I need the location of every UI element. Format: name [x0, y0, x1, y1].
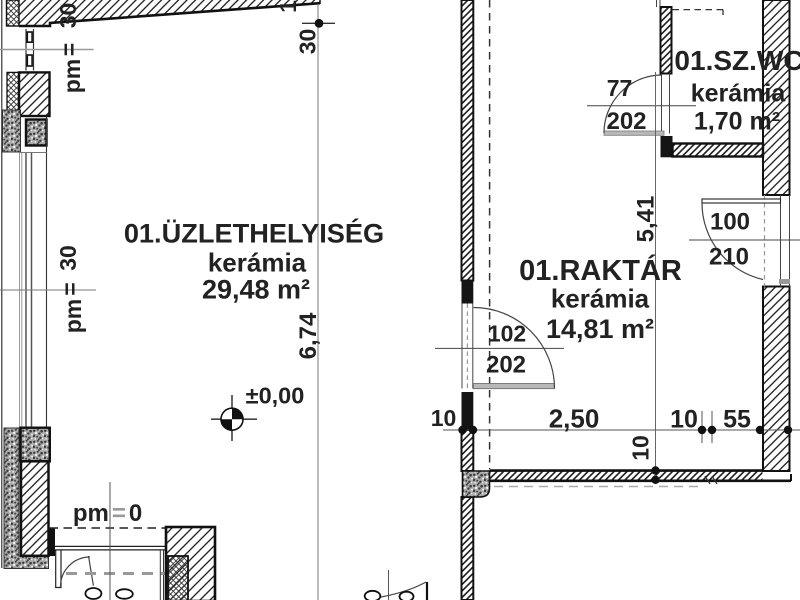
svg-text:1,70 m²: 1,70 m²: [694, 108, 780, 136]
svg-text:=: =: [57, 282, 83, 295]
svg-text:pm=0: pm=0: [73, 500, 142, 527]
svg-text:±0,00: ±0,00: [246, 383, 305, 409]
svg-text:29,48 m²: 29,48 m²: [202, 275, 310, 305]
svg-text:202: 202: [606, 108, 646, 135]
svg-text:01.ÜZLETHELYISÉG: 01.ÜZLETHELYISÉG: [124, 218, 384, 249]
svg-text:5,41: 5,41: [633, 196, 660, 243]
svg-text:pm: pm: [60, 299, 86, 334]
svg-text:102: 102: [488, 321, 526, 347]
svg-text:kerámia: kerámia: [551, 284, 650, 314]
svg-text:6,74: 6,74: [295, 312, 322, 359]
svg-text:14,81 m²: 14,81 m²: [546, 314, 654, 344]
svg-text:kerámia: kerámia: [691, 80, 787, 108]
svg-text:01.SZ.WC: 01.SZ.WC: [674, 45, 800, 76]
svg-text:10: 10: [628, 435, 654, 461]
svg-text:55: 55: [723, 406, 751, 434]
svg-text:100: 100: [710, 209, 750, 236]
svg-text:kerámia: kerámia: [208, 248, 307, 278]
svg-text:202: 202: [486, 352, 526, 379]
svg-text:210: 210: [709, 244, 749, 271]
svg-text:2,50: 2,50: [549, 404, 600, 434]
svg-text:30: 30: [55, 3, 81, 29]
svg-text:1: 1: [275, 0, 301, 13]
svg-text:77: 77: [607, 75, 633, 101]
svg-text:01.RAKTÁR: 01.RAKTÁR: [519, 253, 682, 287]
svg-text:pm: pm: [59, 59, 85, 94]
svg-text:=: =: [56, 43, 82, 56]
svg-text:30: 30: [55, 245, 81, 271]
svg-text:30: 30: [295, 29, 321, 55]
svg-text:10: 10: [431, 405, 457, 431]
svg-text:10: 10: [670, 406, 698, 434]
